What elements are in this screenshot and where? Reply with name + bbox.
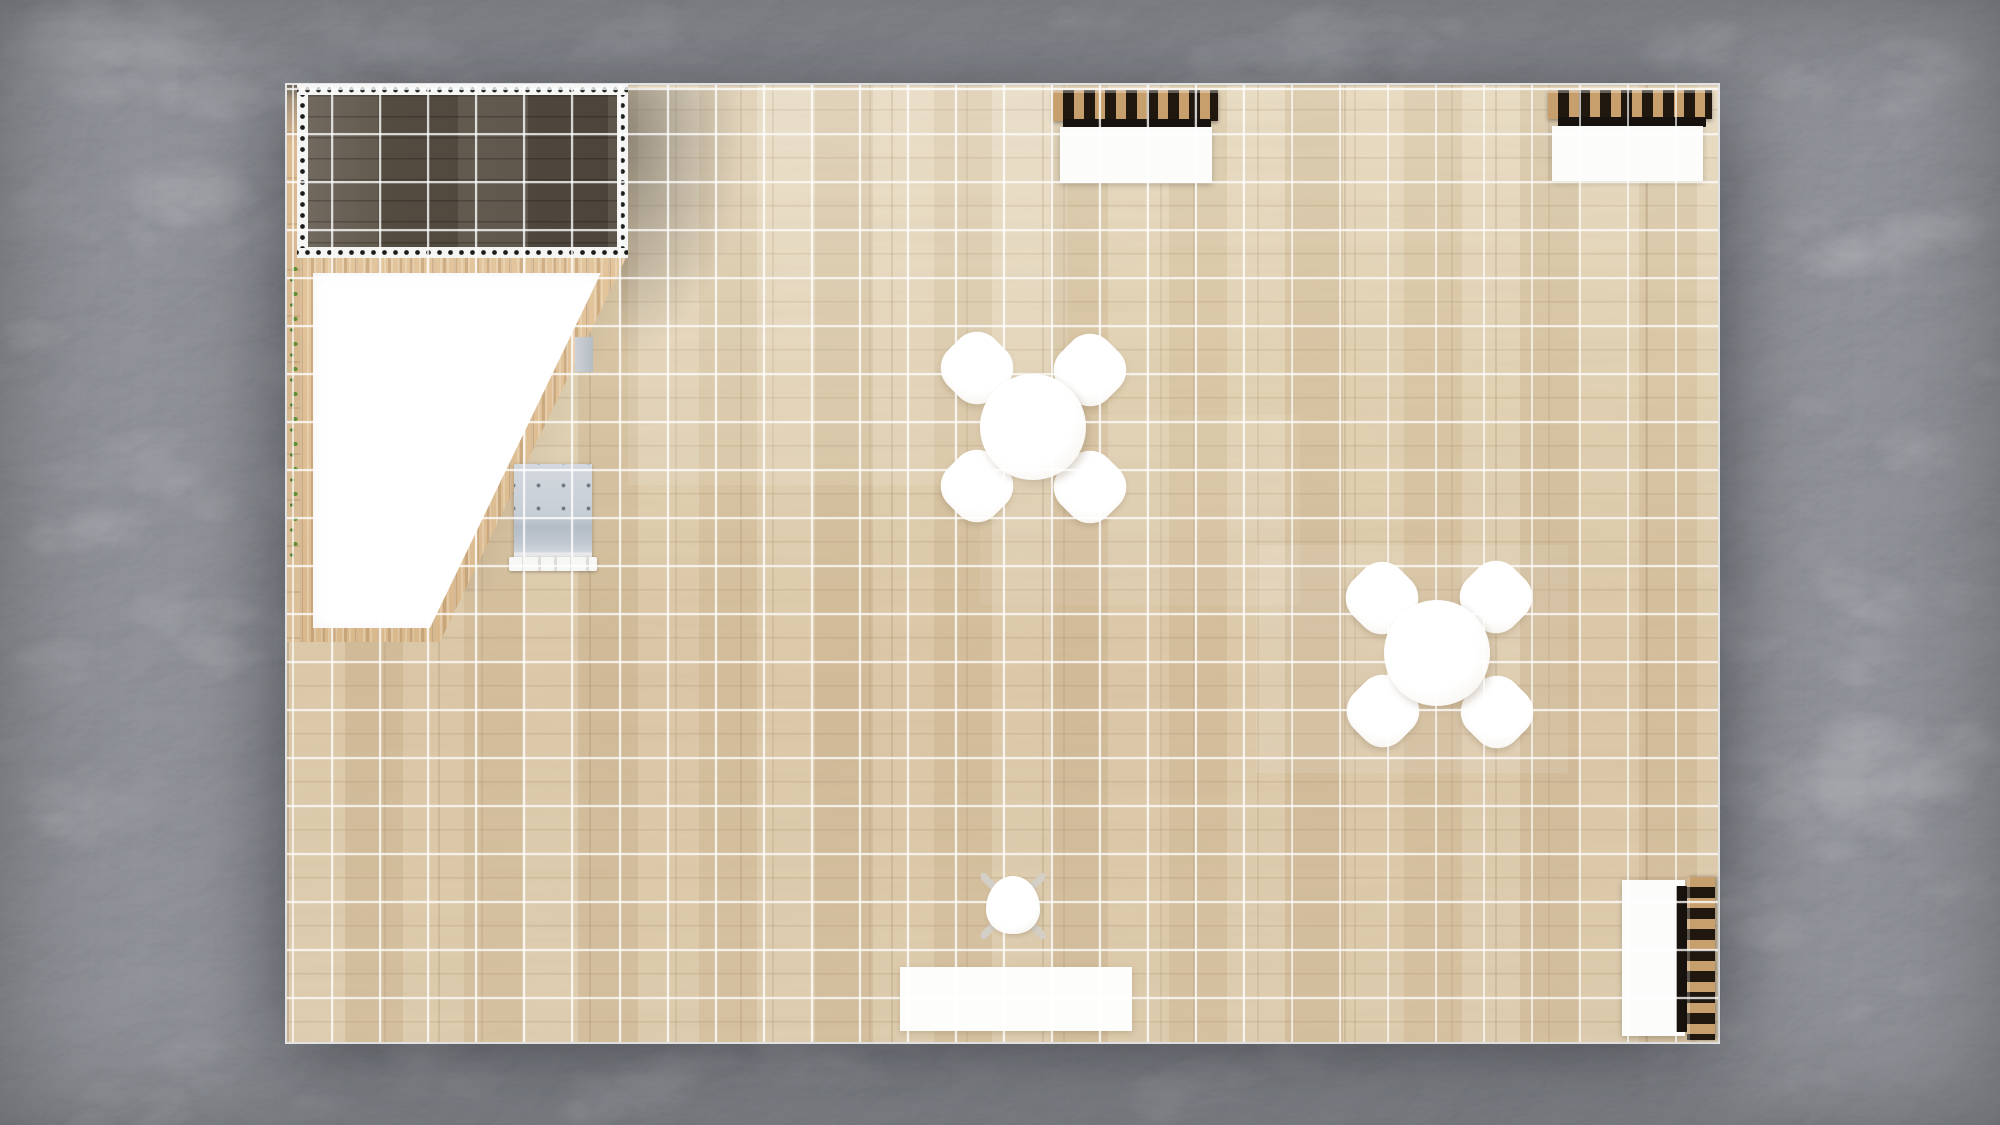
pergola-dot-band-bottom xyxy=(297,247,628,258)
shelf-right-slats xyxy=(1687,877,1715,1040)
shelf-top-left-cabinet xyxy=(1060,127,1212,183)
dining2-chair-ne xyxy=(1449,550,1542,643)
pergola-dot-band-left xyxy=(297,95,308,248)
shelf-right-shadow xyxy=(1676,886,1687,1032)
pergola-cast-shadow xyxy=(620,88,795,528)
dining1-table xyxy=(980,374,1086,480)
dining1-chair-nw xyxy=(930,321,1023,414)
dining1-chair-ne xyxy=(1043,323,1136,416)
shelf-top-right-shadow xyxy=(1558,117,1706,127)
planter-leaf-row xyxy=(288,262,301,564)
floor-highlight-upper xyxy=(628,85,1068,485)
task-chair xyxy=(981,873,1045,939)
render-stage xyxy=(0,0,2000,1125)
pergola-dot-band-right xyxy=(617,95,628,248)
shelf-right-cabinet xyxy=(1622,880,1685,1036)
shelf-top-left-slats xyxy=(1053,90,1218,121)
pergola-dot-band-top xyxy=(297,84,628,96)
reception-desk xyxy=(900,967,1132,1031)
shelf-top-left-shadow xyxy=(1063,119,1211,129)
counter-diagonal-shadow xyxy=(430,252,680,592)
dining1-chair-sw xyxy=(930,439,1023,532)
floor-highlight-right xyxy=(1256,545,1568,773)
floor-highlight-center xyxy=(980,415,1300,605)
dining2-table xyxy=(1384,600,1490,706)
reception-counter-trim xyxy=(300,258,626,642)
dining2-chair-se xyxy=(1450,665,1543,758)
reception-counter-top xyxy=(313,273,601,628)
scene-objects xyxy=(0,0,2000,1125)
dining2-chair-sw xyxy=(1336,664,1429,757)
shelf-top-right-slats xyxy=(1548,90,1712,119)
left-edge-wood-strip xyxy=(287,85,301,642)
dining2-chair-nw xyxy=(1335,551,1428,644)
floor-grid xyxy=(287,85,1718,1042)
wall-side-panel xyxy=(575,337,593,372)
tufted-bench xyxy=(514,464,592,568)
shelf-top-right-cabinet xyxy=(1552,126,1703,181)
pergola-canopy xyxy=(308,95,617,247)
dining1-chair-se xyxy=(1043,440,1136,533)
